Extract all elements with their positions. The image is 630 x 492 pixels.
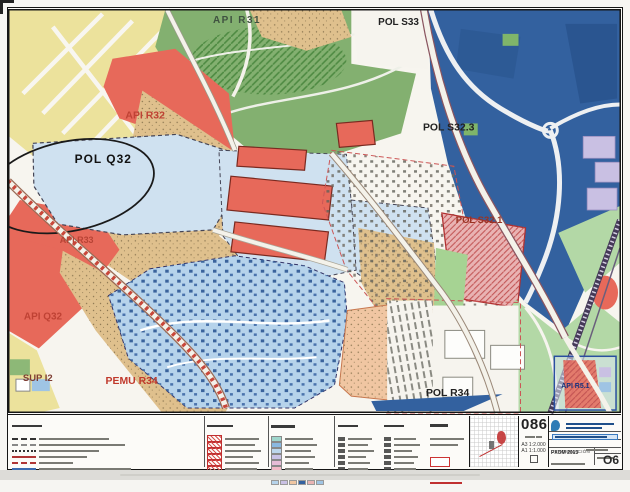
sheet-glyph-row bbox=[521, 434, 546, 440]
legend-text-bar bbox=[225, 456, 253, 458]
label-pol-s32-3: POL S32.3 bbox=[423, 122, 475, 133]
legend-text-bar bbox=[285, 462, 309, 464]
line-sample-red-dash bbox=[12, 462, 36, 464]
legend-item bbox=[430, 442, 466, 448]
zone-pol-q32-fill bbox=[33, 134, 235, 235]
legend-header-bar bbox=[207, 425, 233, 428]
api-r5-lilac bbox=[599, 367, 611, 377]
code-mark bbox=[384, 455, 391, 459]
legend-text-bar bbox=[394, 444, 420, 446]
plan-name: PXOM 2013 bbox=[551, 450, 578, 456]
legend-text-bar bbox=[285, 444, 317, 446]
red-text-bar bbox=[430, 482, 462, 484]
landuse-cell bbox=[316, 480, 324, 485]
legend-text-bar bbox=[430, 444, 458, 446]
zoning-map: API R31 POL S33 API R32 POL S32.3 POL Q3… bbox=[8, 8, 621, 414]
org-logo-icon bbox=[551, 420, 560, 431]
glyph-bar bbox=[536, 436, 542, 438]
legend-text-bar bbox=[394, 438, 416, 440]
legend-text-bar bbox=[348, 462, 370, 464]
title-block-main: PXOM 2013 DENOMINACIÓN O6 bbox=[548, 416, 621, 467]
code-mark bbox=[384, 443, 391, 447]
api-r5-blue bbox=[599, 382, 611, 392]
label-api-r33: API R33 bbox=[60, 235, 94, 245]
zoning-map-canvas: API R31 POL S33 API R32 POL S32.3 POL Q3… bbox=[8, 8, 621, 414]
plan-sheet: API R31 POL S33 API R32 POL S32.3 POL Q3… bbox=[7, 7, 623, 470]
legend-text-bar bbox=[225, 438, 259, 440]
legend-panel-lines bbox=[10, 416, 202, 467]
legend-text-bar bbox=[348, 450, 374, 452]
industrial-green-patch bbox=[503, 34, 519, 46]
code-mark bbox=[338, 449, 345, 453]
legend-header-bar bbox=[12, 425, 42, 428]
label-api-r32: API R32 bbox=[125, 110, 165, 121]
legend-text-bar bbox=[285, 450, 311, 452]
line-sample-red bbox=[12, 456, 36, 458]
legend-panel-hatched bbox=[204, 416, 268, 467]
landuse-cell bbox=[289, 480, 297, 485]
legend-text-bar bbox=[348, 438, 372, 440]
landuse-cell bbox=[298, 480, 306, 485]
north-box bbox=[530, 455, 538, 463]
legend-text-bar bbox=[285, 438, 313, 440]
plan-name-bar bbox=[586, 449, 608, 451]
legend-text-bar bbox=[225, 444, 255, 446]
line-sample-dots bbox=[12, 450, 36, 452]
legend-panel-outline bbox=[428, 416, 468, 467]
legend-header-bar bbox=[384, 425, 404, 428]
series-code: O6 bbox=[595, 454, 621, 466]
key-map-inset bbox=[469, 416, 518, 467]
outlined-swatch bbox=[430, 457, 450, 467]
label-sup-i2: SUP I2 bbox=[23, 373, 53, 384]
landuse-cell bbox=[280, 480, 288, 485]
label-api-r31: API R31 bbox=[213, 15, 261, 26]
line-sample-dashdot bbox=[12, 438, 36, 440]
code-mark bbox=[384, 449, 391, 453]
scan-smudge bbox=[120, 474, 480, 476]
code-mark bbox=[384, 437, 391, 441]
highlight-text-bar bbox=[555, 436, 607, 438]
legend-text-bar bbox=[39, 450, 99, 452]
legend-text-bar bbox=[394, 450, 412, 452]
glyph-bar bbox=[525, 436, 535, 438]
legend-text-bar bbox=[348, 456, 366, 458]
legend-text-bar bbox=[225, 462, 259, 464]
scan-bottom-margin bbox=[0, 470, 630, 480]
legend-text-bar bbox=[225, 450, 261, 452]
legend-text-bar bbox=[394, 456, 418, 458]
code-mark bbox=[384, 461, 391, 465]
scan-border-left bbox=[0, 0, 3, 14]
legend-text-bar bbox=[39, 444, 125, 446]
landuse-cell bbox=[271, 480, 279, 485]
sheet-number-cell: 086 A3 1:2.000 A1 1:1.000 bbox=[518, 416, 548, 467]
landuse-cell bbox=[307, 480, 315, 485]
legend-header-bar bbox=[271, 425, 295, 428]
org-text-bar bbox=[566, 423, 614, 425]
keymap-location-mark bbox=[497, 431, 506, 444]
highlight-row bbox=[549, 432, 621, 440]
plan-name-row: PXOM 2013 bbox=[549, 440, 621, 448]
code-mark bbox=[338, 455, 345, 459]
legend-text-bar bbox=[285, 456, 315, 458]
codes-column-1 bbox=[338, 418, 374, 472]
legend-text-bar bbox=[348, 444, 368, 446]
org-text-bar bbox=[566, 427, 602, 429]
code-mark bbox=[338, 443, 345, 447]
label-pol-s33: POL S33 bbox=[378, 17, 419, 28]
sheet-number: 086 bbox=[521, 418, 546, 432]
label-pemu-r34: PEMU R34 bbox=[106, 376, 158, 387]
salmon-texture bbox=[339, 305, 391, 401]
legend-text-bar bbox=[39, 456, 87, 458]
legend-header-bar bbox=[430, 424, 448, 427]
codes-column-2 bbox=[384, 418, 420, 472]
legend-panel-codes bbox=[334, 416, 426, 467]
code-mark bbox=[338, 461, 345, 465]
legend-text-bar bbox=[39, 438, 109, 440]
label-pol-s32-1: POL S32.1 bbox=[456, 215, 503, 226]
legend-panel-ordinances bbox=[268, 416, 332, 467]
org-row bbox=[549, 416, 621, 432]
label-pol-r34: POL R34 bbox=[426, 388, 470, 399]
label-api-q32: API Q32 bbox=[24, 311, 63, 322]
scale-a1: A1 1:1.000 bbox=[521, 448, 546, 454]
denomination-bar bbox=[551, 463, 585, 465]
code-mark bbox=[338, 437, 345, 441]
label-pol-q32: POL Q32 bbox=[75, 152, 132, 166]
legend-text-bar bbox=[394, 462, 414, 464]
legend-header-bar bbox=[338, 425, 358, 428]
line-sample-dash-gray bbox=[12, 444, 36, 446]
label-api-r5-1: API R5.1 bbox=[561, 383, 589, 390]
legend-text-bar bbox=[39, 462, 73, 464]
legend-text-bar bbox=[430, 438, 464, 440]
org-text-lines bbox=[566, 423, 614, 429]
legend-strip: 086 A3 1:2.000 A1 1:1.000 PXOM 2013 bbox=[8, 414, 621, 469]
